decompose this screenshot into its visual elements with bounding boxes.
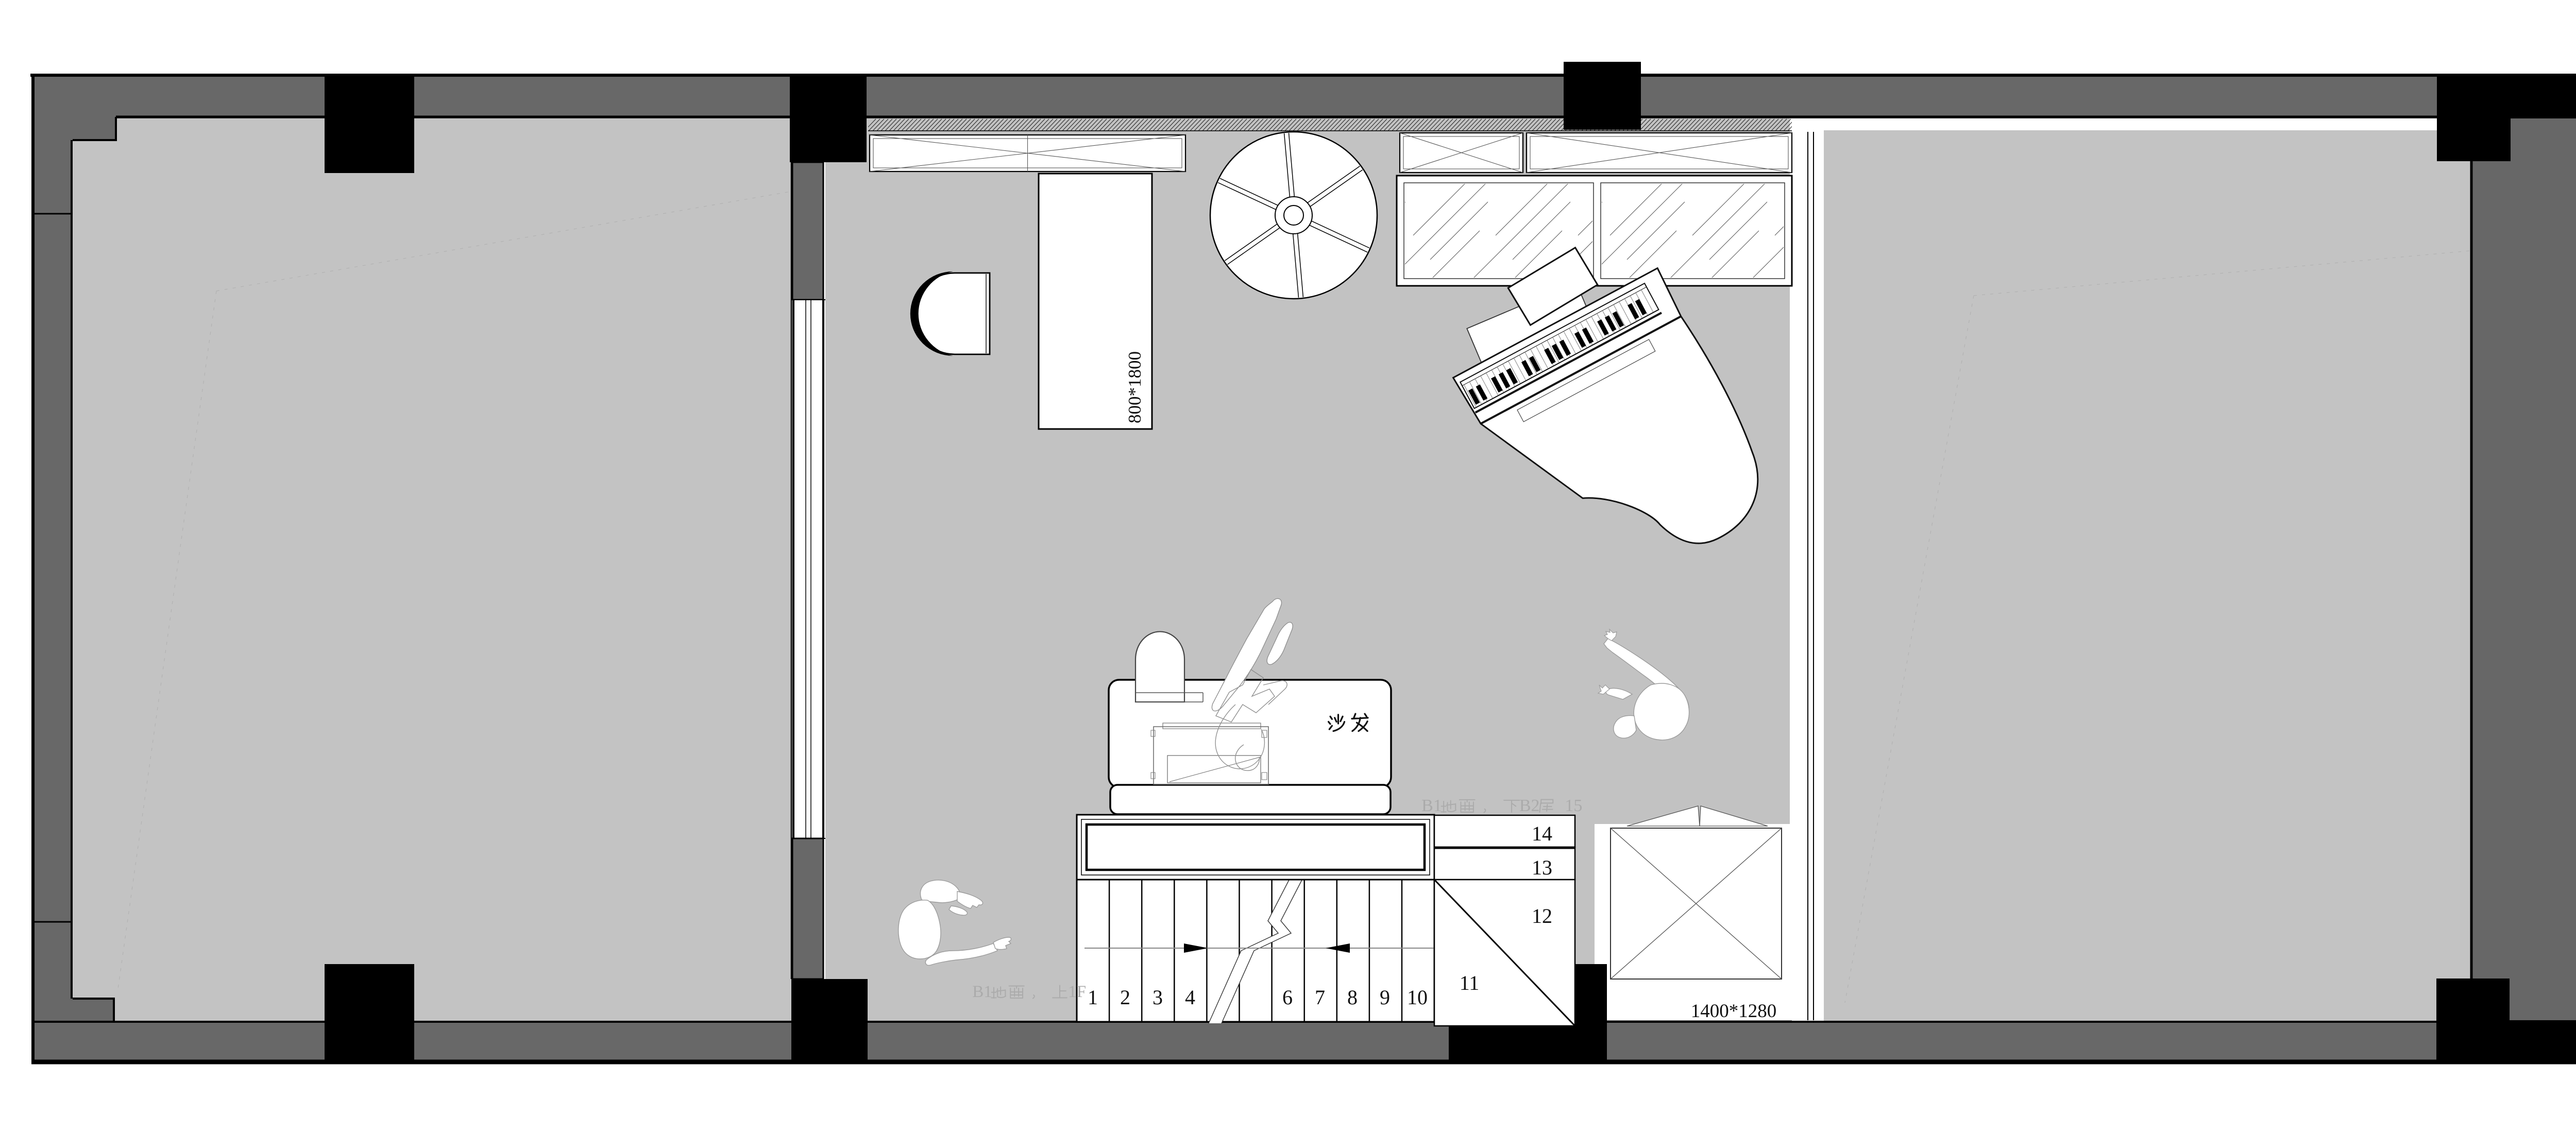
svg-text:9: 9 [1380,986,1390,1009]
svg-text:12: 12 [1532,904,1552,928]
svg-text:11: 11 [1460,971,1480,994]
svg-text:1F: 1F [1068,983,1086,1001]
svg-text:10: 10 [1407,986,1428,1009]
svg-text:2: 2 [1120,986,1130,1009]
svg-text:1: 1 [1088,986,1098,1009]
svg-text:B1: B1 [972,983,992,1001]
svg-text:6: 6 [1282,986,1293,1009]
svg-text:1400*1280: 1400*1280 [1691,1001,1777,1022]
svg-text:15: 15 [1565,796,1582,815]
svg-text:B1: B1 [1421,796,1442,815]
svg-text:3: 3 [1153,986,1163,1009]
svg-text:14: 14 [1532,822,1552,845]
svg-text:B2: B2 [1519,796,1540,815]
svg-text:8: 8 [1347,986,1358,1009]
svg-text:800*1800: 800*1800 [1125,351,1145,423]
svg-text:4: 4 [1185,986,1195,1009]
svg-text:7: 7 [1315,986,1325,1009]
svg-text:13: 13 [1532,856,1552,879]
